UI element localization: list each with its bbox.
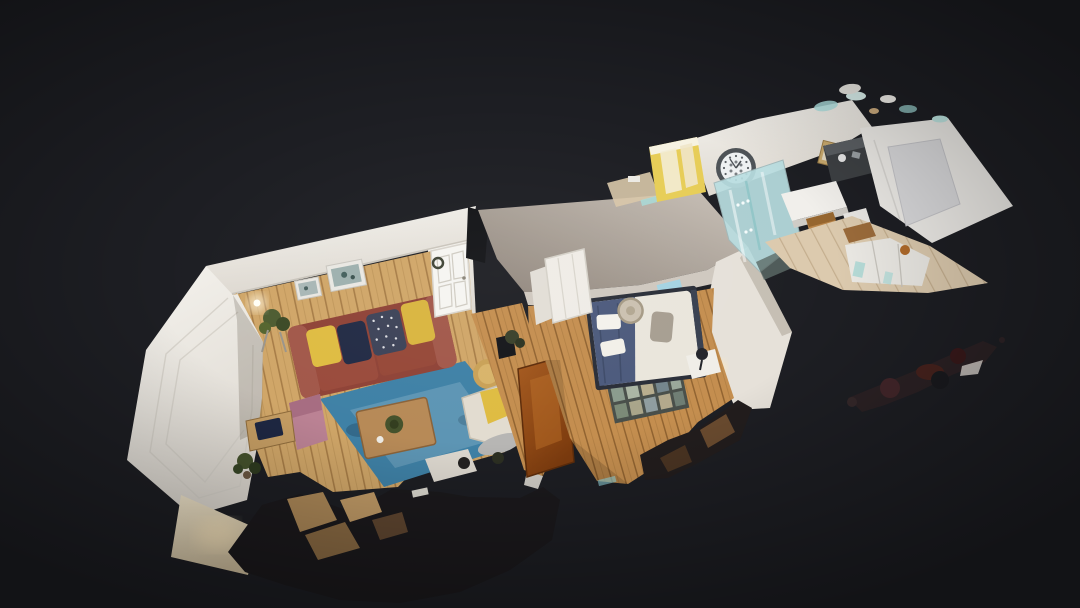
dark-fragment bbox=[492, 452, 504, 464]
gray-cushion bbox=[650, 311, 675, 343]
debris-blob bbox=[847, 397, 857, 407]
bed-pillow bbox=[596, 314, 621, 330]
speaker bbox=[458, 457, 470, 469]
hall-plant bbox=[515, 338, 525, 348]
wall-light bbox=[254, 300, 261, 307]
orange-item bbox=[900, 245, 910, 255]
door-knob bbox=[462, 276, 466, 280]
white-fragment bbox=[880, 95, 896, 103]
debris-blob bbox=[880, 378, 900, 398]
bedside-lamp bbox=[696, 348, 708, 360]
wardrobe-door-open bbox=[545, 249, 592, 323]
scene-svg bbox=[0, 0, 1080, 608]
cyan-fringe bbox=[932, 116, 948, 123]
debris-blob bbox=[950, 348, 966, 364]
debris-blob bbox=[931, 371, 949, 389]
tan-fragment bbox=[869, 108, 879, 114]
panelled-door bbox=[431, 243, 471, 317]
white-fragment bbox=[628, 176, 640, 182]
lamp-glow bbox=[194, 519, 238, 551]
double-bed bbox=[585, 286, 707, 391]
dollhouse-viewport[interactable] bbox=[0, 0, 1080, 608]
yellow-cabinet bbox=[649, 137, 706, 202]
debris-speck bbox=[999, 337, 1005, 343]
cyan-fringe bbox=[899, 105, 917, 113]
kettle bbox=[838, 154, 846, 162]
plant-pot bbox=[243, 471, 251, 479]
